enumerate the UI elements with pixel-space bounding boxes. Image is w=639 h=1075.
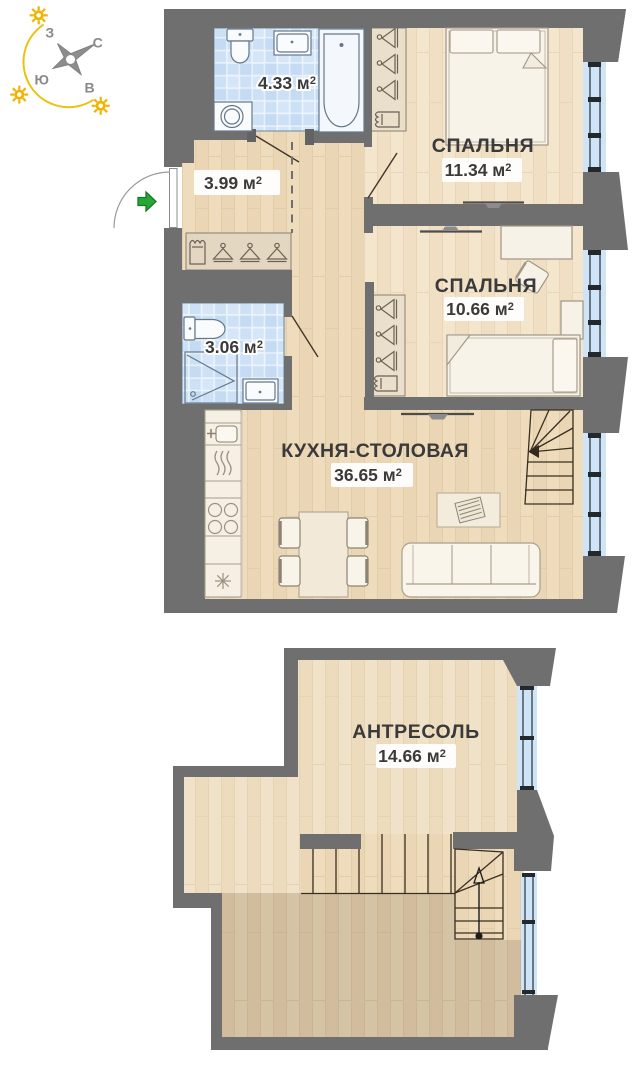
svg-text:3.06 м2: 3.06 м2 xyxy=(205,337,263,357)
svg-text:АНТРЕСОЛЬ: АНТРЕСОЛЬ xyxy=(352,721,479,743)
svg-text:С: С xyxy=(93,35,103,51)
svg-text:36.65 м2: 36.65 м2 xyxy=(334,465,402,485)
svg-text:14.66 м2: 14.66 м2 xyxy=(378,746,446,766)
svg-text:Ю: Ю xyxy=(34,71,48,87)
svg-text:СПАЛЬНЯ: СПАЛЬНЯ xyxy=(432,135,534,157)
svg-text:З: З xyxy=(45,25,54,41)
svg-text:3.99 м2: 3.99 м2 xyxy=(204,173,262,193)
svg-text:11.34 м2: 11.34 м2 xyxy=(445,160,512,180)
svg-text:КУХНЯ-СТОЛОВАЯ: КУХНЯ-СТОЛОВАЯ xyxy=(281,440,468,462)
svg-text:СПАЛЬНЯ: СПАЛЬНЯ xyxy=(435,275,537,297)
svg-text:10.66 м2: 10.66 м2 xyxy=(446,299,514,319)
svg-text:4.33 м2: 4.33 м2 xyxy=(258,73,316,93)
svg-text:В: В xyxy=(84,80,94,96)
